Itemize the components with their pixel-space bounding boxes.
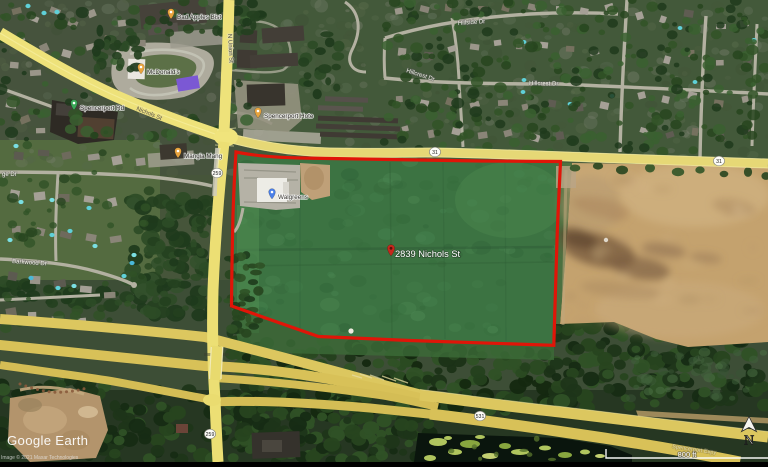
svg-text:ge Dr: ge Dr <box>2 172 17 178</box>
svg-text:N: N <box>744 434 754 449</box>
svg-text:31: 31 <box>716 159 722 165</box>
svg-text:Spencerport Hote: Spencerport Hote <box>264 113 314 120</box>
svg-text:Google Earth: Google Earth <box>7 433 88 448</box>
svg-text:Spencerport Rd: Spencerport Rd <box>80 105 125 112</box>
svg-text:Image © 2021 Maxar Technologie: Image © 2021 Maxar Technologies <box>1 454 79 461</box>
svg-text:259: 259 <box>206 432 215 438</box>
svg-text:Mangia Mang: Mangia Mang <box>184 153 223 160</box>
svg-text:Hillcrest Dr: Hillcrest Dr <box>529 81 558 88</box>
svg-text:800 ft: 800 ft <box>678 450 698 459</box>
svg-text:Walgreens: Walgreens <box>278 194 308 201</box>
svg-text:31: 31 <box>432 150 438 156</box>
svg-text:259: 259 <box>213 171 222 177</box>
svg-text:Bad Apples Bist: Bad Apples Bist <box>177 14 221 21</box>
svg-text:McDonald's: McDonald's <box>147 69 180 76</box>
svg-text:531: 531 <box>476 414 485 420</box>
svg-text:2839 Nichols St: 2839 Nichols St <box>395 249 461 259</box>
